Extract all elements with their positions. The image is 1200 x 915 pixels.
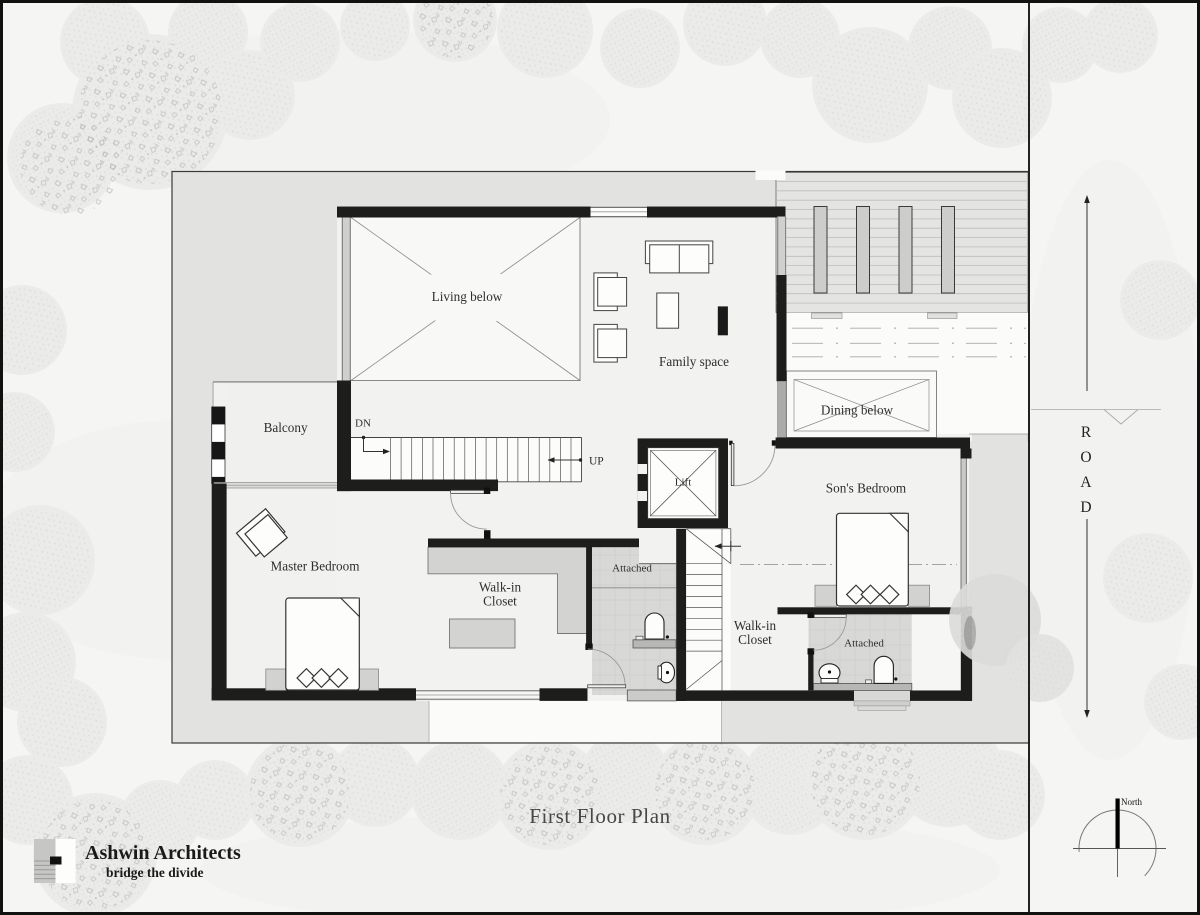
svg-text:DN: DN: [355, 418, 371, 430]
svg-text:Family space: Family space: [659, 354, 729, 369]
svg-text:bridge the divide: bridge the divide: [106, 865, 204, 880]
svg-text:R: R: [1081, 424, 1092, 441]
svg-text:O: O: [1080, 449, 1091, 466]
svg-text:Living below: Living below: [432, 289, 503, 304]
svg-text:A: A: [1080, 474, 1092, 491]
svg-text:Attached: Attached: [844, 638, 884, 650]
svg-text:D: D: [1080, 499, 1091, 516]
svg-text:Lift: Lift: [675, 477, 692, 489]
svg-text:Walk-in: Walk-in: [479, 580, 522, 595]
svg-text:Closet: Closet: [483, 594, 517, 609]
svg-text:Son's Bedroom: Son's Bedroom: [826, 481, 907, 496]
svg-text:North: North: [1121, 797, 1142, 807]
svg-text:First Floor Plan: First Floor Plan: [529, 804, 670, 828]
svg-text:Walk-in: Walk-in: [734, 618, 777, 633]
svg-text:Ashwin Architects: Ashwin Architects: [85, 842, 241, 864]
svg-text:UP: UP: [589, 456, 604, 468]
svg-text:Balcony: Balcony: [264, 420, 308, 435]
svg-text:Closet: Closet: [738, 632, 772, 647]
svg-text:Master Bedroom: Master Bedroom: [271, 559, 361, 574]
svg-text:Attached: Attached: [612, 563, 652, 575]
svg-text:Dining below: Dining below: [821, 403, 894, 418]
